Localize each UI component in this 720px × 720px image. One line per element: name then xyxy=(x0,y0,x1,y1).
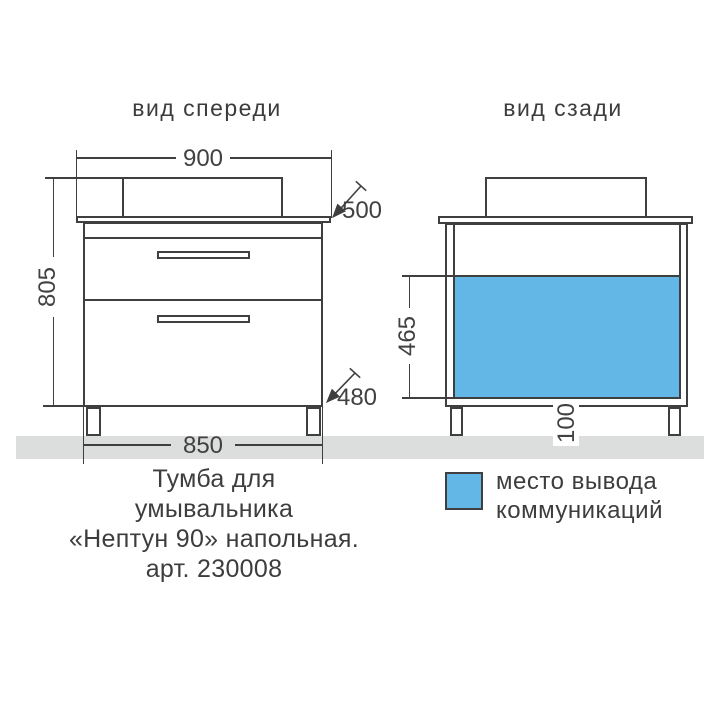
dim-100-label: 100 xyxy=(553,400,579,446)
front-sink-basin xyxy=(122,177,283,218)
dim-805-top-tick xyxy=(45,177,122,179)
dim-900-ext-right xyxy=(331,150,333,218)
front-view-title: вид спереди xyxy=(97,95,317,122)
back-sink-basin xyxy=(485,177,647,218)
caption-line4: арт. 230008 xyxy=(34,554,394,584)
caption-line1: Тумба для xyxy=(34,464,394,494)
dim-850-label: 850 xyxy=(171,432,235,460)
legend-label: место вывода коммуникаций xyxy=(496,467,663,525)
caption-line2: умывальника xyxy=(34,494,394,524)
leader-480-tick xyxy=(350,368,360,377)
dim-900-ext-left xyxy=(76,150,78,218)
legend-swatch xyxy=(445,472,483,510)
dim-805-label: 805 xyxy=(34,257,60,317)
dim-900-line-left xyxy=(76,157,176,159)
front-top-rim-line xyxy=(85,237,321,239)
back-leg-left xyxy=(450,407,463,436)
front-leg-left xyxy=(86,407,101,436)
dim-480-label: 480 xyxy=(331,384,383,412)
back-inner-panel-right xyxy=(679,225,681,277)
front-drawer-divider xyxy=(85,299,321,301)
product-dimension-diagram: вид спереди 900 805 850 500 480 вид сзад… xyxy=(0,0,720,720)
product-caption: Тумба для умывальника «Нептун 90» наполь… xyxy=(34,464,394,584)
dim-465-label: 465 xyxy=(394,308,420,364)
front-drawer-handle-top xyxy=(157,251,250,259)
dim-900-line-right xyxy=(230,157,331,159)
dim-850-line-right xyxy=(235,444,322,446)
leader-500-tick xyxy=(356,181,366,190)
dim-805-bottom-tick xyxy=(43,405,84,407)
back-inner-panel-left xyxy=(453,225,455,277)
legend-label-line1: место вывода xyxy=(496,467,663,496)
dim-900-label: 900 xyxy=(176,145,230,173)
back-view-title: вид сзади xyxy=(453,95,673,122)
floor-strip xyxy=(16,436,704,459)
communications-area xyxy=(453,275,681,399)
dim-850-line-left xyxy=(83,444,171,446)
dim-500-label: 500 xyxy=(336,197,388,225)
dim-850-tick-right xyxy=(322,407,324,464)
dim-850-tick-left xyxy=(83,407,85,464)
front-leg-right xyxy=(306,407,321,436)
front-drawer-handle-bottom xyxy=(157,315,250,323)
legend-label-line2: коммуникаций xyxy=(496,496,663,525)
back-leg-right xyxy=(668,407,681,436)
caption-line3: «Нептун 90» напольная. xyxy=(34,524,394,554)
